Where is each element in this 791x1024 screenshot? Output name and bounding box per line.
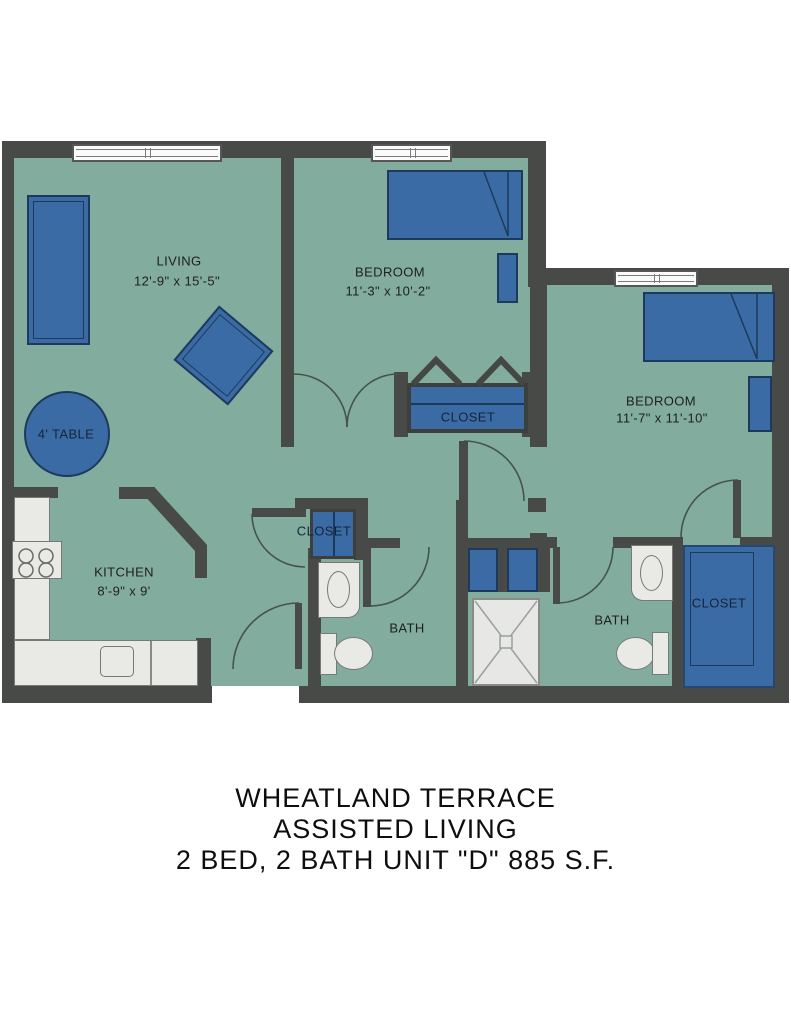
bedroom1-dims: 11'-3" x 10'-2" [346, 284, 431, 299]
wall-counter-end [196, 638, 211, 686]
bedroom2-label: BEDROOM [626, 394, 696, 409]
window-bedroom1 [371, 144, 452, 162]
kitchen-sink [100, 646, 134, 677]
sofa-cushion-line [33, 201, 84, 339]
wall-linen-divider [498, 548, 507, 592]
hall-closet-label: CLOSET [297, 524, 351, 539]
title-line-3: 2 BED, 2 BATH UNIT "D" 885 S.F. [0, 845, 791, 876]
bedroom1-closet-shelf [407, 383, 528, 433]
window-mullion [654, 274, 660, 283]
bedroom2-dims: 11'-7" x 11'-10" [616, 411, 708, 426]
sofa [27, 195, 90, 345]
shower [472, 598, 540, 686]
bed-bedroom1 [387, 170, 523, 240]
bath2-label: BATH [594, 613, 629, 628]
dresser-bedroom1 [497, 253, 518, 303]
wall-bottom-west [2, 686, 212, 703]
bedroom1-closet-label: CLOSET [441, 410, 495, 425]
bed-bedroom2 [643, 292, 775, 362]
bath2-sink-basin [640, 555, 663, 591]
linen-shelf-2 [507, 548, 538, 592]
title-block: WHEATLAND TERRACE ASSISTED LIVING 2 BED,… [0, 783, 791, 876]
kitchen-counter-divider [150, 641, 152, 685]
bath1-sink-basin [327, 571, 350, 608]
wall-bedroom1-door-jamb [394, 372, 408, 437]
window-bedroom2 [614, 270, 698, 287]
wall-kitchen-entry-top [119, 487, 155, 499]
dresser-bedroom2 [748, 376, 772, 432]
title-line-1: WHEATLAND TERRACE [0, 783, 791, 814]
living-room-label: LIVING [156, 254, 201, 269]
floor-plan: LIVING 12'-9" x 15'-5" BEDROOM 11'-3" x … [0, 0, 791, 1024]
wall-hall-closet-stub [354, 538, 400, 548]
entry-opening [212, 686, 299, 703]
wall-vestibule-stub [528, 498, 546, 512]
title-line-2: ASSISTED LIVING [0, 814, 791, 845]
wall-bedroom1-west [281, 158, 294, 447]
wall-bath1-east [456, 500, 468, 686]
bedroom1-label: BEDROOM [355, 265, 425, 280]
wall-bottom-east [299, 686, 789, 703]
table-label: 4' TABLE [38, 427, 95, 442]
window-living [72, 144, 222, 162]
window-mullion [410, 148, 416, 158]
living-room-dims: 12'-9" x 15'-5" [134, 274, 220, 289]
wall-closet2-west [672, 548, 683, 686]
linen-shelf-1 [468, 548, 498, 592]
wall-linen-east-stub [538, 548, 550, 592]
bath1-label: BATH [389, 621, 424, 636]
wall-step-right [528, 141, 546, 287]
wall-left [2, 141, 14, 703]
window-mullion [145, 148, 151, 158]
wall-kitchen-entry-vert [195, 545, 207, 578]
bath2-toilet-bowl [616, 637, 655, 670]
wall-hall-closet-east [354, 498, 368, 560]
wall-bedroom2-west [530, 285, 547, 447]
bath1-toilet-bowl [334, 637, 373, 670]
bedroom2-closet-label: CLOSET [692, 596, 746, 611]
wall-bath2-top-a [530, 537, 557, 548]
bedroom2-closet [683, 545, 775, 688]
kitchen-stove [12, 541, 62, 579]
kitchen-dims: 8'-9" x 9' [97, 584, 150, 599]
kitchen-label: KITCHEN [94, 565, 154, 580]
bath2-toilet-tank [652, 632, 669, 675]
bedroom1-closet-shelf-line [411, 403, 524, 405]
